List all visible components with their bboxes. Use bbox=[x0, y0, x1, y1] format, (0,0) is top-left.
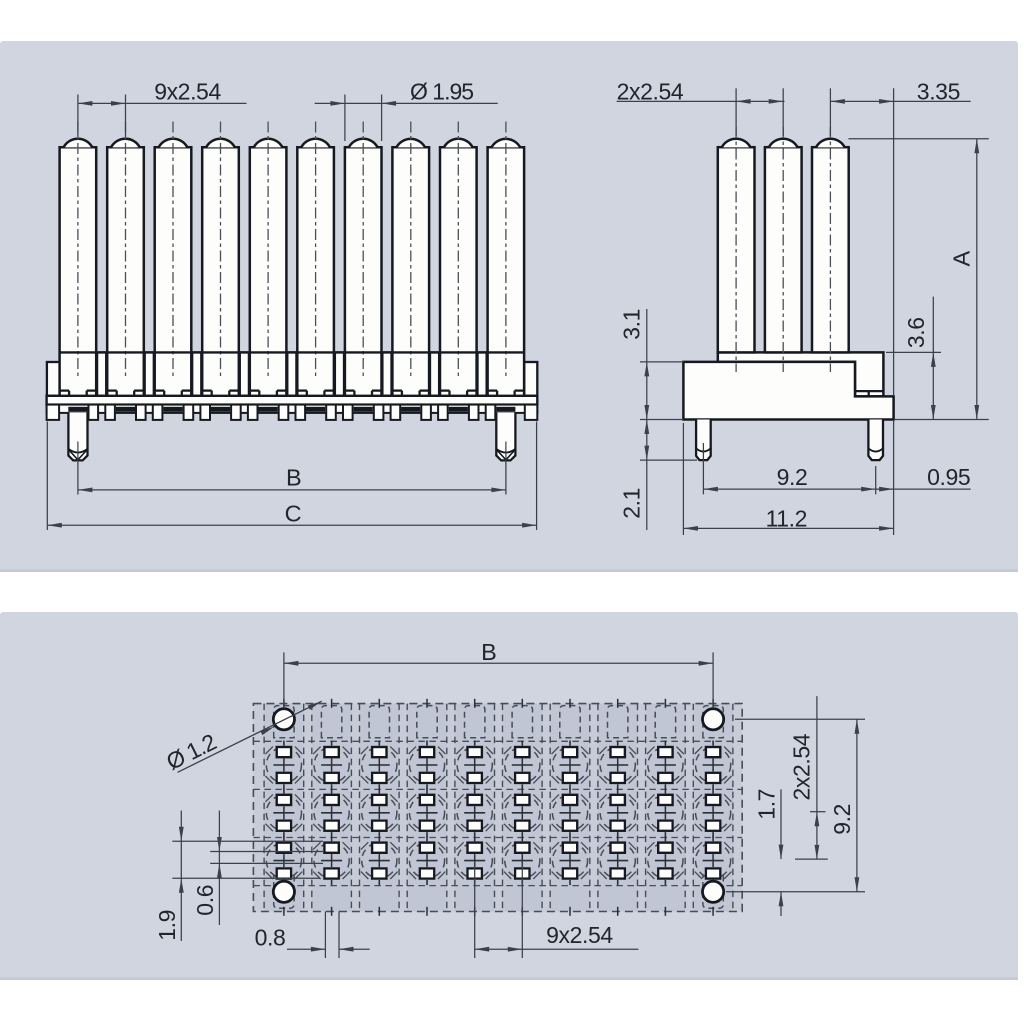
svg-text:2x2.54: 2x2.54 bbox=[789, 733, 815, 800]
svg-text:B: B bbox=[481, 639, 496, 665]
svg-text:2.1: 2.1 bbox=[619, 488, 645, 519]
svg-text:2x2.54: 2x2.54 bbox=[617, 78, 684, 104]
svg-text:9x2.54: 9x2.54 bbox=[154, 79, 221, 105]
svg-text:11.2: 11.2 bbox=[766, 505, 807, 531]
svg-text:9.2: 9.2 bbox=[777, 464, 808, 490]
svg-text:0.6: 0.6 bbox=[192, 885, 218, 916]
svg-text:0.95: 0.95 bbox=[927, 464, 970, 490]
svg-text:3.6: 3.6 bbox=[903, 317, 929, 348]
svg-text:B: B bbox=[286, 465, 301, 491]
svg-text:Ø 1.95: Ø 1.95 bbox=[410, 79, 473, 105]
svg-text:A: A bbox=[948, 250, 974, 266]
svg-text:C: C bbox=[285, 500, 302, 526]
svg-text:3.1: 3.1 bbox=[619, 309, 645, 340]
svg-text:3.35: 3.35 bbox=[917, 78, 960, 104]
svg-text:1.9: 1.9 bbox=[154, 910, 180, 941]
svg-text:0.8: 0.8 bbox=[255, 925, 286, 951]
svg-text:9x2.54: 9x2.54 bbox=[546, 922, 613, 948]
svg-text:1.7: 1.7 bbox=[754, 789, 780, 820]
svg-text:9.2: 9.2 bbox=[829, 804, 855, 835]
